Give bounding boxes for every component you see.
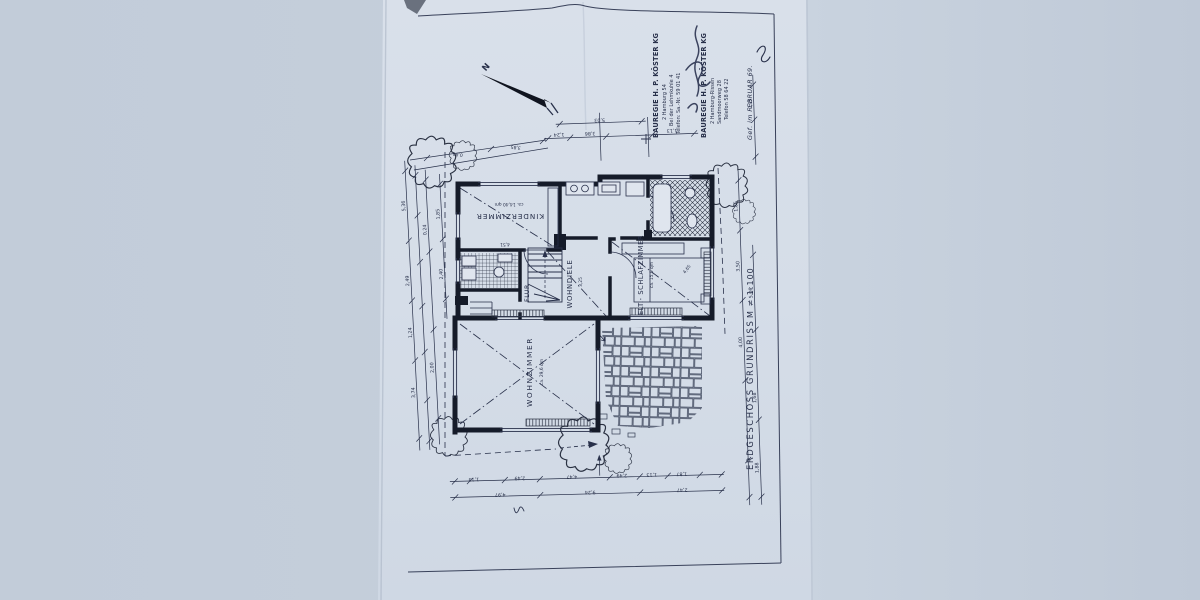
dim: 1,24 — [554, 131, 565, 137]
area-schlafzimmer: ca. 15,9 qm — [649, 262, 655, 288]
dim: 2,00 — [429, 362, 436, 373]
dim: 1,24 — [407, 327, 414, 338]
dim: 2,49 — [405, 275, 412, 286]
stamp2-street: Sandmoorweg 28 — [717, 80, 723, 124]
drawing-scale: M ≠ 1:100 — [746, 267, 755, 318]
stamp1-phone: Telefon: Sa.-Nr. 59 01 41 — [676, 73, 682, 135]
area-kinderzimmer: ca. 14,40 qm — [495, 201, 524, 207]
stamp1-street: Bei der Lehmkuhle 4 — [669, 74, 675, 126]
dim: 3,74 — [411, 387, 418, 398]
label-schlafzimmer: ELT.- SCHLAFZIMMER — [637, 235, 645, 315]
dim: 1,85 — [435, 209, 442, 220]
dim: 2,40 — [438, 269, 445, 280]
photo-background — [0, 0, 1200, 600]
dim: 2,49 — [616, 472, 627, 478]
label-kinderzimmer: KINDERZIMMER — [476, 212, 544, 221]
photo-of-floor-plan: BAUREGIE H. P. KÖSTER KG 2 Hamburg 54 Be… — [0, 0, 1200, 600]
dim: 1,13 — [468, 476, 479, 482]
label-flur: FLUR — [524, 284, 531, 302]
dim: 4,97 — [495, 491, 506, 497]
stamp2-phone: Telefon 58 64 22 — [724, 78, 730, 121]
dim: 0,95 — [748, 98, 754, 109]
drawing-title: ERDGESCHOSS GRUNDRISS — [745, 320, 755, 470]
dim-diele-inner: 3,25 — [578, 277, 584, 287]
stamp1-city: 2 Hamburg 54 — [662, 84, 668, 120]
dim: 4,00 — [738, 337, 744, 348]
dim-kinder-inner: 4,51 — [500, 241, 510, 247]
dim: 9,24 — [585, 489, 596, 495]
dim: 5,36 — [401, 200, 408, 211]
dim: 2,47 — [677, 486, 688, 492]
title-block: ERDGESCHOSS GRUNDRISS M ≠ 1:100 — [745, 267, 755, 470]
stamp1-company: BAUREGIE H. P. KÖSTER KG — [651, 33, 660, 138]
label-wohnzimmer: WOHNZIMMER — [525, 337, 534, 407]
area-wohnzimmer: ca. 29,6 qm — [539, 359, 545, 385]
dim: 1,85 — [733, 201, 739, 212]
dim: 1,88 — [754, 462, 760, 473]
dim: 4,47 — [566, 473, 577, 479]
label-wohndiele: WOHNDIELE — [566, 259, 574, 308]
dim: 1,13 — [646, 471, 657, 477]
floor-plan-drawing: BAUREGIE H. P. KÖSTER KG 2 Hamburg 54 Be… — [0, 0, 1200, 600]
dim: 1,13 — [667, 127, 678, 133]
stamp2-city: 2 Hamburg-Rissen — [710, 78, 716, 124]
dim: 1,87 — [676, 470, 687, 476]
dim: 3,50 — [735, 261, 741, 272]
dim: 5,03 — [594, 117, 605, 123]
dim: 2,49 — [514, 475, 525, 481]
dim: 3,86 — [585, 130, 596, 136]
dim: 0,24 — [422, 224, 429, 235]
